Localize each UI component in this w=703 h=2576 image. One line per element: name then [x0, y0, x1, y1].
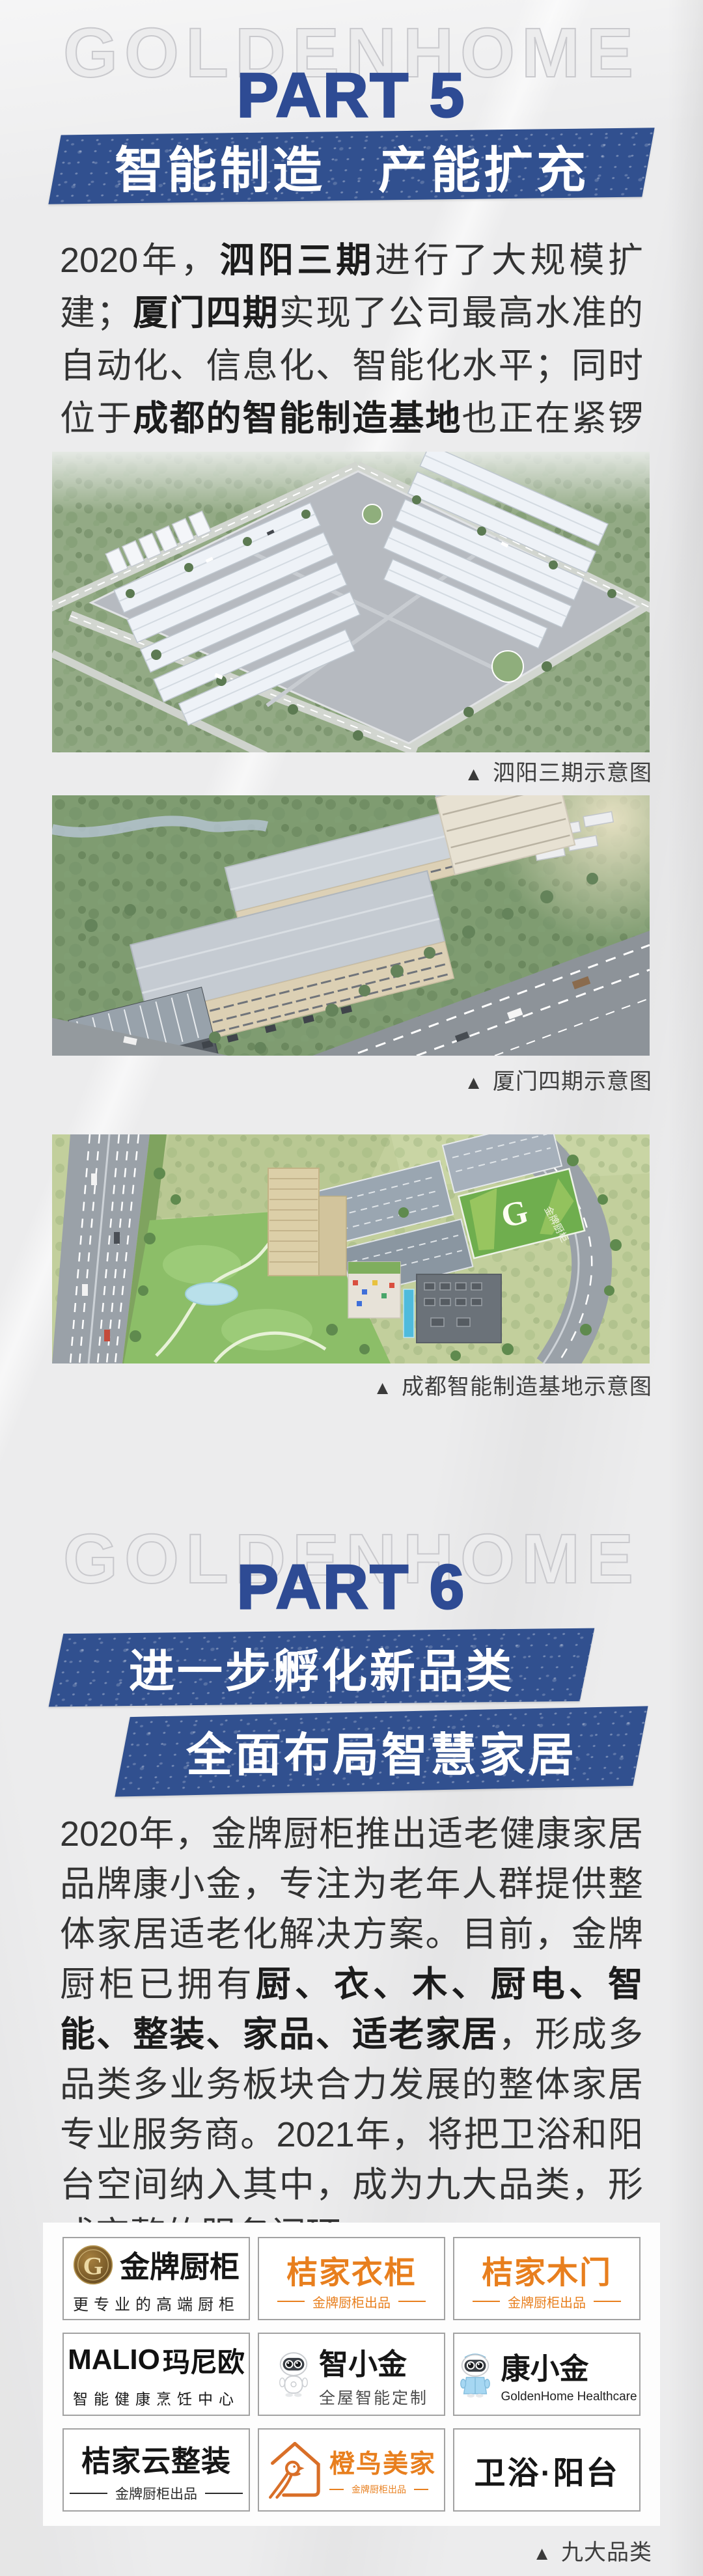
triangle-marker-icon: ▲ [532, 2543, 552, 2564]
siyang-caption-text: 泗阳三期示意图 [493, 761, 652, 786]
brand-tagline: 更专业的高端厨柜 [73, 2292, 240, 2314]
siyang-phase3-aerial-image [52, 452, 650, 752]
bold-text-segment: 成都的智能制造基地 [133, 399, 462, 438]
brand-tagline: 金牌厨柜出品 [115, 2484, 197, 2503]
brand-name: 康小金 [501, 2345, 588, 2387]
brand-name: 玛尼欧 [163, 2340, 245, 2380]
divider-line [594, 2301, 621, 2302]
divider-line [398, 2301, 426, 2302]
orange-bird-house-logo-icon [267, 2439, 323, 2501]
part6-paragraph: 2020年，金牌厨柜推出适老健康家居品牌康小金，专注为老年人群提供整体家居适老化… [60, 1809, 643, 2260]
brand-name: 卫浴·阳台 [475, 2447, 620, 2493]
part6-banner-line2-text: 全面布局智慧家居 [186, 1718, 577, 1785]
part6-banner-line2: 全面布局智慧家居 [115, 1706, 648, 1796]
divider-line [329, 2489, 344, 2490]
brand-card-chengniao: 橙鸟美家 金牌厨柜出品 [258, 2428, 445, 2512]
goldenhome-g-medallion-icon: G [73, 2245, 113, 2285]
chengdu-base-aerial-image: G 金牌厨柜 [52, 1134, 650, 1363]
brand-name-en: MALIO [68, 2344, 160, 2376]
brand-name: 桔家木门 [482, 2247, 612, 2292]
chengdu-aerial-render: G 金牌厨柜 [52, 1134, 650, 1363]
siyang-caption: ▲泗阳三期示意图 [464, 755, 652, 787]
triangle-marker-icon: ▲ [464, 764, 484, 785]
brand-card-jujia-doors: 桔家木门 金牌厨柜出品 [453, 2237, 641, 2320]
divider-line [70, 2493, 107, 2494]
xiamen-caption: ▲厦门四期示意图 [464, 1063, 652, 1095]
brand-name: 智小金 [319, 2340, 407, 2383]
brand-name: 桔家衣柜 [286, 2247, 417, 2292]
nine-categories-caption-text: 九大品类 [561, 2540, 652, 2565]
divider-line [277, 2301, 305, 2302]
triangle-marker-icon: ▲ [373, 1378, 393, 1399]
chengdu-caption-text: 成都智能制造基地示意图 [402, 1375, 652, 1399]
xiamen-caption-text: 厦门四期示意图 [493, 1069, 652, 1094]
divider-line [473, 2301, 500, 2302]
brand-card-zhixiaojin: 智小金 全屋智能定制 [258, 2333, 445, 2416]
triangle-marker-icon: ▲ [464, 1073, 484, 1093]
siyang-aerial-render [52, 452, 650, 752]
brand-card-malio: MALIO 玛尼欧 智能健康烹饪中心 [62, 2333, 250, 2416]
part5-banner-text: 智能制造 产能扩充 [115, 130, 589, 202]
brand-card-jujia-wardrobe: 桔家衣柜 金牌厨柜出品 [258, 2237, 445, 2320]
brand-grid: G 金牌厨柜 更专业的高端厨柜 桔家衣柜 金牌厨柜出品 桔家木门 金牌厨柜出品 … [43, 2223, 660, 2526]
brand-name: 桔家云整装 [81, 2437, 231, 2480]
smart-robot-mascot-icon [275, 2351, 312, 2398]
brand-card-jujia-cloud: 桔家云整装 金牌厨柜出品 [62, 2428, 250, 2512]
part6-title: PART 6 [0, 1552, 703, 1623]
divider-line [414, 2489, 428, 2490]
brand-card-kangxiaojin: 康小金 GoldenHome Healthcare [453, 2333, 641, 2416]
brand-tagline: 金牌厨柜出品 [312, 2292, 391, 2311]
text-segment: 2020年， [60, 241, 219, 280]
brand-tagline: GoldenHome Healthcare [501, 2390, 637, 2404]
bold-text-segment: 厦门四期 [131, 294, 279, 333]
chengdu-caption: ▲成都智能制造基地示意图 [373, 1369, 652, 1401]
brand-card-goldenhome: G 金牌厨柜 更专业的高端厨柜 [62, 2237, 250, 2320]
brand-name: 橙鸟美家 [329, 2444, 436, 2480]
brand-tagline: 智能健康烹饪中心 [73, 2387, 240, 2409]
health-robot-mascot-icon [456, 2351, 494, 2398]
brand-card-bath-balcony: 卫浴·阳台 [453, 2428, 641, 2512]
brand-tagline: 全屋智能定制 [319, 2385, 428, 2409]
brand-tagline: 金牌厨柜出品 [351, 2483, 406, 2496]
promo-poster-page: GOLDENHOME PART 5 智能制造 产能扩充 2020年，泗阳三期进行… [0, 0, 703, 2576]
bold-text-segment: 泗阳三期 [219, 241, 375, 280]
part5-title: PART 5 [0, 60, 703, 131]
xiamen-phase4-aerial-image [52, 795, 650, 1056]
part5-banner: 智能制造 产能扩充 [48, 128, 654, 204]
part6-banner-line1-text: 进一步孵化新品类 [129, 1635, 514, 1701]
divider-line [205, 2493, 243, 2494]
part6-banner-line1: 进一步孵化新品类 [49, 1628, 595, 1707]
brand-tagline: 金牌厨柜出品 [508, 2292, 586, 2311]
brand-name: 金牌厨柜 [120, 2243, 240, 2286]
nine-categories-caption: ▲九大品类 [532, 2534, 652, 2566]
xiamen-aerial-render [52, 795, 650, 1056]
svg-text:G: G [83, 2251, 103, 2280]
